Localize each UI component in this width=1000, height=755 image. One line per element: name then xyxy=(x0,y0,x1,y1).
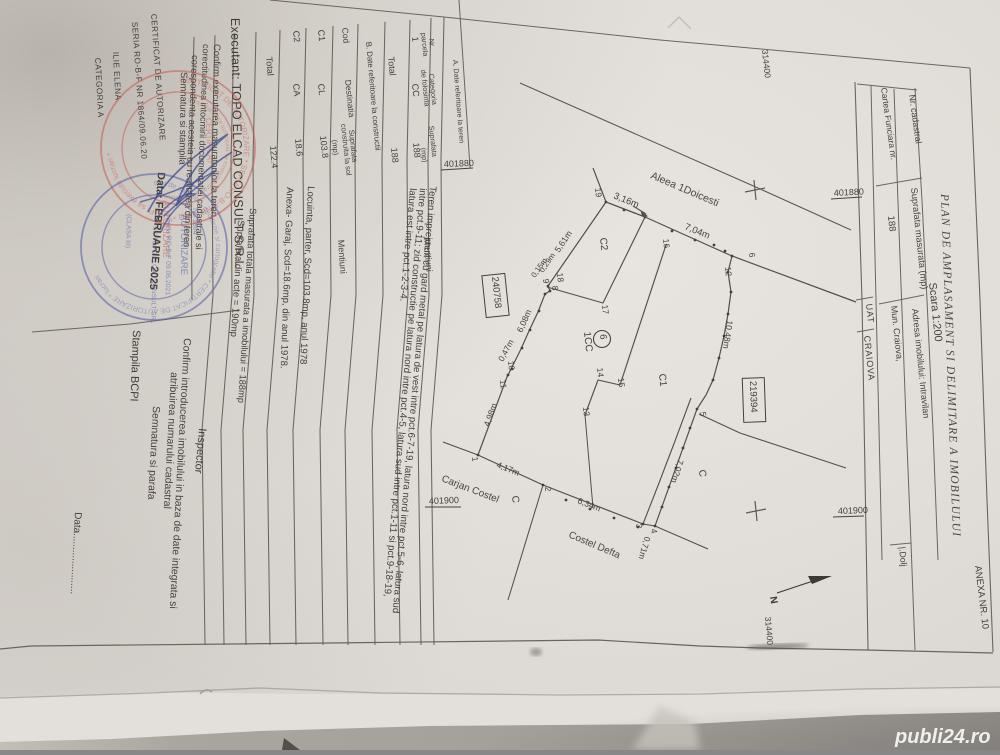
svg-text:18.6: 18.6 xyxy=(293,138,305,156)
svg-text:C: C xyxy=(509,495,521,503)
svg-text:publi24.ro: publi24.ro xyxy=(894,726,991,748)
svg-text:122.4: 122.4 xyxy=(268,145,280,168)
svg-text:188: 188 xyxy=(389,147,400,163)
svg-text:CL: CL xyxy=(316,83,327,95)
svg-text:C1: C1 xyxy=(656,373,668,387)
svg-text:Total: Total xyxy=(386,56,398,76)
svg-text:C1: C1 xyxy=(316,29,327,41)
svg-text:C2: C2 xyxy=(597,237,609,251)
svg-text:15: 15 xyxy=(616,377,627,388)
svg-text:1: 1 xyxy=(410,36,420,42)
svg-text:401900: 401900 xyxy=(838,505,868,516)
svg-text:401900: 401900 xyxy=(429,495,459,506)
svg-text:219394: 219394 xyxy=(747,381,759,413)
svg-text:CERTIFICAT: CERTIFICAT xyxy=(204,118,215,165)
svg-text:UAT: UAT xyxy=(864,303,876,324)
svg-text:12: 12 xyxy=(723,266,734,277)
svg-text:|.Dolj: |.Dolj xyxy=(897,546,909,567)
svg-text:10: 10 xyxy=(506,360,517,371)
svg-text:CA: CA xyxy=(291,83,302,96)
svg-text:Cod: Cod xyxy=(340,27,352,44)
svg-text:17: 17 xyxy=(600,304,611,315)
svg-text:CC: CC xyxy=(410,83,421,97)
svg-text:Nr. 1864: Nr. 1864 xyxy=(191,208,198,235)
svg-text:14: 14 xyxy=(595,367,606,378)
svg-text:188: 188 xyxy=(885,215,898,232)
svg-text:188: 188 xyxy=(411,142,423,158)
svg-text:Total: Total xyxy=(264,56,276,76)
svg-text:AUTORIZARE: AUTORIZARE xyxy=(178,214,189,275)
svg-text:19: 19 xyxy=(593,187,604,198)
svg-text:1CC: 1CC xyxy=(581,331,594,352)
svg-text:401880: 401880 xyxy=(834,186,865,198)
svg-text:13: 13 xyxy=(581,406,592,417)
svg-text:Stampila BCPI: Stampila BCPI xyxy=(128,330,142,402)
svg-text:16: 16 xyxy=(661,238,672,249)
svg-text:C: C xyxy=(696,469,708,477)
svg-text:(CLASA III): (CLASA III) xyxy=(124,214,132,248)
svg-text:11: 11 xyxy=(498,379,509,389)
svg-text:18: 18 xyxy=(555,272,566,283)
svg-text:Seria RO-B-F 09.06.2021: Seria RO-B-F 09.06.2021 xyxy=(164,218,172,295)
svg-text:(mp): (mp) xyxy=(330,139,341,156)
svg-text:401880: 401880 xyxy=(444,158,474,169)
svg-text:C2: C2 xyxy=(291,30,302,42)
svg-text:Semnatura si stampila: Semnatura si stampila xyxy=(177,72,190,166)
